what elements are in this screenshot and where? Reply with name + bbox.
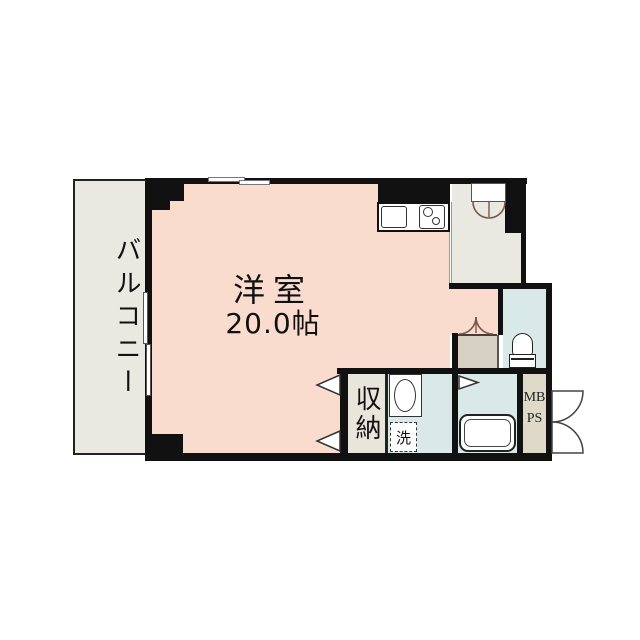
main-room-label: 洋室 20.0帖	[180, 274, 366, 338]
storage-label: 収納	[348, 377, 385, 451]
pipe-shaft-label: PS	[523, 408, 546, 429]
shaft-label: MB PS	[523, 387, 546, 429]
main-room-name: 洋室	[180, 274, 366, 306]
floor-plan: 洗 バルコニー 洋室 20.0帖 収納 MB PS	[0, 0, 640, 640]
closet-door-swing-right	[476, 317, 493, 334]
storage-folding-door-bottom-icon	[317, 431, 340, 451]
shaft-door-top-leaf	[552, 391, 583, 422]
entrance-door-swing-right	[489, 202, 505, 218]
meter-box-label: MB	[523, 387, 546, 408]
closet-door-swing-left	[459, 317, 476, 334]
shaft-door-bottom-leaf	[552, 422, 583, 453]
bathroom-folding-door-icon	[459, 376, 478, 389]
entrance-door-swing-left	[473, 202, 489, 218]
main-room-size: 20.0帖	[180, 310, 366, 338]
storage-folding-door-top-icon	[317, 375, 340, 395]
balcony-label: バルコニー	[73, 224, 145, 412]
